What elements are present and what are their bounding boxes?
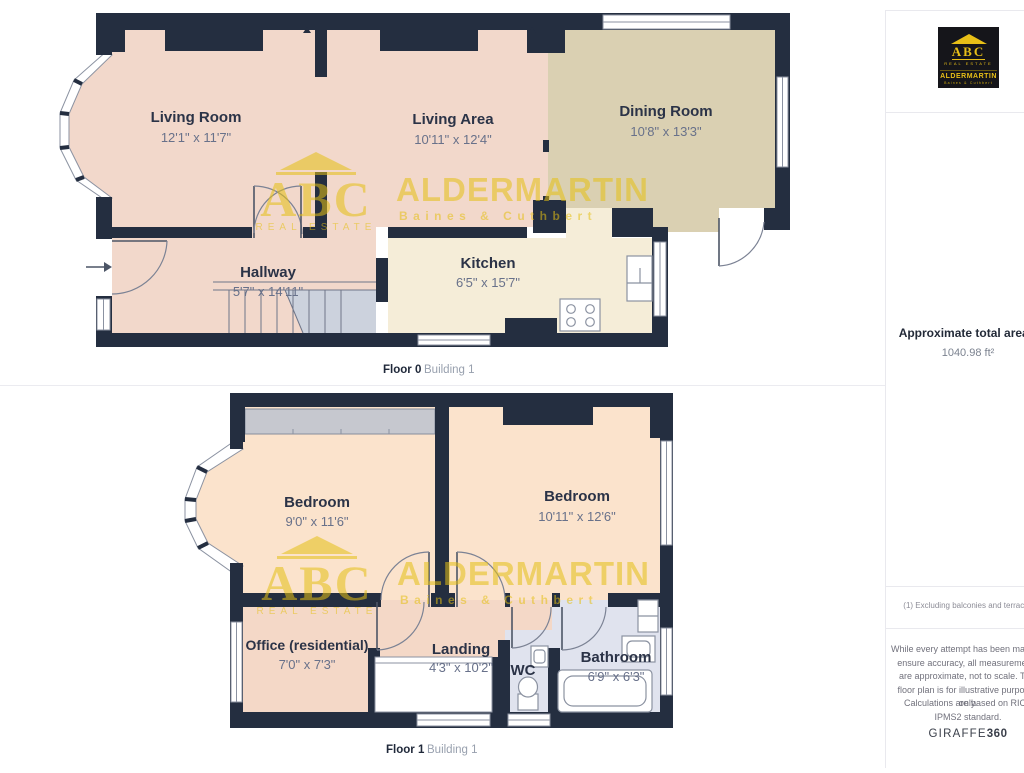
sidebar-divider	[886, 112, 1024, 113]
stove-icon	[560, 299, 600, 331]
room-dims: 10'11" x 12'4"	[414, 132, 492, 147]
room-dims: 9'0" x 11'6"	[285, 514, 348, 529]
giraffe-text: GIRAFFE	[929, 728, 987, 740]
floorplan-canvas[interactable]: ABC REAL ESTATE ALDERMARTIN Baines & Cut…	[0, 0, 886, 768]
room-label: Bedroom	[544, 488, 610, 505]
total-area-value: 1040.98 ft²	[886, 347, 1024, 359]
room-label: Living Area	[412, 111, 494, 128]
entry-arrow-icon	[86, 262, 112, 272]
giraffe360-logo: GIRAFFE360	[886, 728, 1024, 740]
dining-door-arc	[719, 222, 764, 266]
floor-card-divider	[0, 385, 886, 386]
sidebar-divider	[886, 10, 1024, 11]
giraffe-360-text: 360	[987, 728, 1008, 740]
room-dims: 10'8" x 13'3"	[630, 124, 702, 139]
room-label: Bedroom	[284, 494, 350, 511]
room-dims: 4'3" x 10'2"	[429, 660, 493, 675]
logo-name: ALDERMARTIN	[940, 70, 997, 80]
svg-text:ABC: ABC	[260, 171, 372, 227]
total-area-title: Approximate total area(1)	[886, 326, 1024, 340]
svg-text:REAL ESTATE: REAL ESTATE	[257, 606, 378, 617]
sidebar-divider	[886, 628, 1024, 629]
room-label: Dining Room	[619, 103, 712, 120]
building-caption: Building 1	[427, 744, 478, 756]
logo-abc: ABC	[952, 45, 985, 60]
room-label: Landing	[432, 641, 490, 658]
floor-caption: Floor 0	[383, 364, 421, 376]
svg-text:Baines & Cuthbert: Baines & Cuthbert	[399, 209, 597, 223]
room-label: Office (residential)	[246, 637, 369, 653]
room-label: Living Room	[151, 109, 242, 126]
logo-tagline: REAL ESTATE	[944, 61, 992, 66]
wardrobe	[245, 409, 435, 434]
room-label: Bathroom	[581, 649, 652, 666]
room-dims: 7'0" x 7'3"	[279, 657, 336, 672]
standard-text: Calculations are based on RICS IPMS2 sta…	[890, 697, 1024, 724]
floor-caption: Floor 1	[386, 744, 425, 756]
svg-text:Baines & Cuthbert: Baines & Cuthbert	[400, 593, 598, 607]
area-footnote: (1) Excluding balconies and terraces	[886, 601, 1024, 610]
svg-text:REAL ESTATE: REAL ESTATE	[256, 222, 377, 233]
room-dims: 5'7" x 14'11"	[233, 284, 304, 299]
sidebar-divider	[886, 586, 1024, 587]
floor1-caption: Floor 1 Building 1	[386, 744, 478, 756]
logo-sub: Baines & Cuthbert	[944, 81, 993, 85]
room-label: WC	[511, 662, 536, 679]
sidebar-vertical-divider	[885, 10, 886, 768]
building-caption: Building 1	[424, 364, 475, 376]
svg-text:ALDERMARTIN: ALDERMARTIN	[396, 171, 649, 208]
room-dims: 12'1" x 11'7"	[161, 130, 232, 145]
room-label: Kitchen	[460, 255, 515, 272]
room-dims: 6'9" x 6'3"	[588, 669, 645, 684]
agency-logo: ABC REAL ESTATE ALDERMARTIN Baines & Cut…	[938, 27, 999, 88]
info-sidebar: ABC REAL ESTATE ALDERMARTIN Baines & Cut…	[886, 0, 1024, 768]
total-area-section: Approximate total area(1) 1040.98 ft²	[886, 326, 1024, 359]
room-dims: 10'11" x 12'6"	[538, 509, 616, 524]
room-label: Hallway	[240, 264, 297, 281]
room-dims: 6'5" x 15'7"	[456, 275, 520, 290]
svg-text:ABC: ABC	[261, 555, 373, 611]
total-area-title-text: Approximate total area	[899, 326, 1024, 340]
svg-text:ALDERMARTIN: ALDERMARTIN	[397, 555, 650, 592]
floor0-caption: Floor 0 Building 1	[383, 364, 475, 376]
